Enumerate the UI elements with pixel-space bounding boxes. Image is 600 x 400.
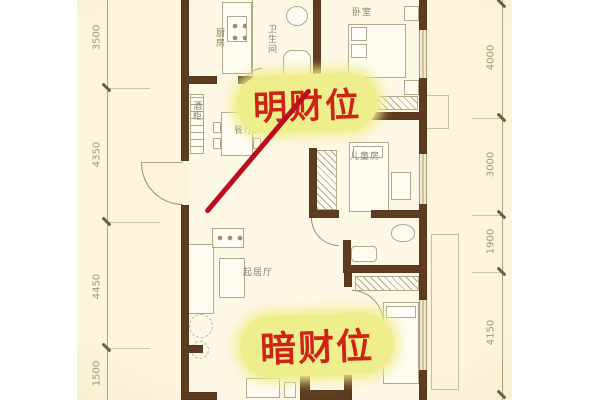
wall-bottom-mid-foot: [300, 390, 352, 400]
dim-ext-left-a: [108, 88, 150, 89]
kitchen-label: 厨房: [214, 28, 224, 48]
dim-right-1900: 1900: [486, 222, 497, 262]
ac-unit-outline: [426, 95, 449, 129]
bottom-cabinet-a: [246, 378, 280, 398]
dim-ext-right-c: [472, 272, 502, 273]
dim-ext-right-b: [472, 215, 502, 216]
bathroom-label: 卫生间: [266, 24, 276, 54]
bottom-cabinet-b: [284, 382, 296, 398]
bedroom2-pillow: [386, 306, 416, 318]
wall-living-stub: [183, 345, 203, 353]
master-bed-pillow-b: [351, 44, 367, 58]
toilet: [391, 224, 415, 242]
dim-line-left: [107, 0, 108, 400]
wall-bedroom2-left-a: [344, 273, 352, 287]
midbath-sink: [351, 246, 377, 262]
stove: [227, 16, 247, 42]
dim-left-3500: 3500: [92, 18, 103, 58]
entrance-door-panel: [141, 162, 183, 163]
dim-left-4450: 4450: [92, 267, 103, 307]
tv-cabinet: [212, 228, 244, 248]
dim-left-4350: 4350: [92, 135, 103, 175]
dim-left-1500: 1500: [92, 354, 103, 394]
dim-right-4000: 4000: [486, 38, 497, 78]
dark-wealth-badge: 暗财位: [239, 311, 395, 378]
window-bedroom2: [419, 300, 427, 370]
wall-midbath-bottom: [343, 265, 427, 273]
bedroom2-wardrobe: [355, 276, 419, 291]
wine-cabinet-label: 酒柜: [191, 101, 201, 121]
living-room-label: 起居厅: [243, 268, 273, 278]
wall-left-outer-lower: [181, 205, 189, 400]
nightstand-a: [404, 6, 419, 21]
kids-room-label: 儿童房: [350, 152, 380, 162]
coffee-table: [219, 258, 245, 298]
bath-sink: [286, 6, 308, 26]
balcony-outline: [431, 234, 459, 390]
floorplan-page: { "annotations": { "bright_wealth_label"…: [0, 0, 600, 400]
master-bed-pillow-a: [351, 27, 367, 41]
bright-wealth-badge: 明财位: [235, 72, 379, 135]
window-master-bedroom: [419, 30, 427, 78]
wall-kidsroom-bottom-b: [371, 210, 427, 218]
window-kids-room: [419, 154, 427, 204]
dim-ext-right-a: [472, 118, 502, 119]
wall-kitchen-bottom-a: [181, 76, 217, 84]
wall-bottom-left-foot: [181, 392, 217, 400]
dining-chair-c: [213, 138, 221, 149]
dim-ext-left-b: [108, 222, 160, 223]
dim-line-right: [502, 0, 503, 400]
sofa: [188, 244, 214, 314]
dim-right-4150: 4150: [486, 313, 497, 353]
wall-kidsroom-bottom-a: [309, 210, 339, 218]
wall-kidsroom-left: [309, 148, 317, 218]
dining-chair-a: [213, 122, 221, 133]
dim-ext-left-c: [108, 348, 150, 349]
kids-desk: [391, 172, 411, 200]
dim-right-3000: 3000: [486, 145, 497, 185]
master-bedroom-label: 卧室: [352, 8, 372, 18]
nightstand-b: [404, 80, 419, 95]
